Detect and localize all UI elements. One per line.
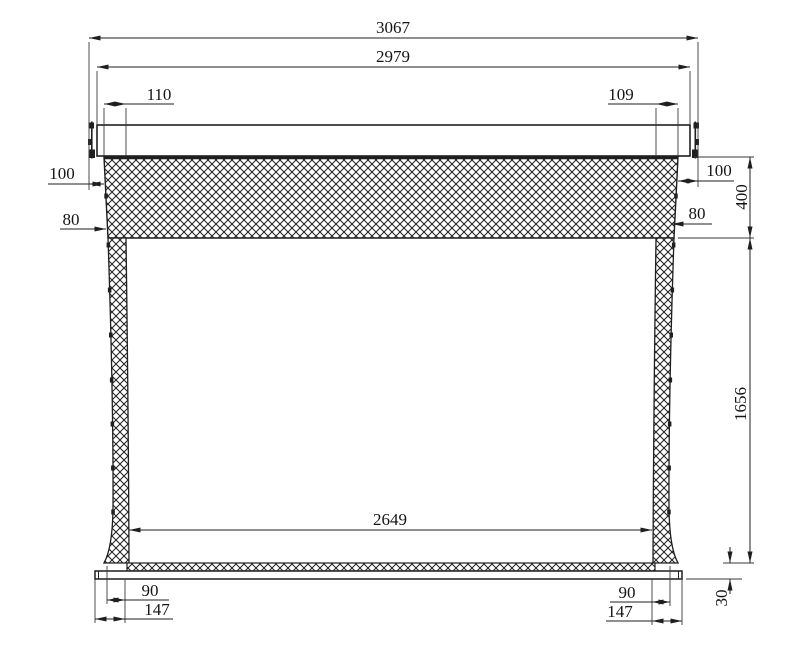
bottom-weight-bar: [95, 571, 682, 579]
dim-border-right-label: 80: [689, 204, 706, 223]
bottom-hatched-strip: [127, 563, 655, 571]
dim-overall-width-label: 3067: [376, 18, 411, 37]
dim-offset-top-left-label: 110: [147, 85, 172, 104]
dim-edge-left-label: 100: [49, 164, 75, 183]
dim-bar-height-label: 30: [712, 590, 731, 607]
dim-foot-right-inner-label: 90: [619, 583, 636, 602]
dim-edge-right-label: 100: [706, 161, 732, 180]
dim-foot-right-outer-label: 147: [607, 602, 633, 621]
dim-case-width-label: 2979: [376, 47, 410, 66]
dim-foot-left-outer-label: 147: [144, 600, 170, 619]
dim-band-height-label: 400: [732, 184, 751, 210]
top-housing-case: [97, 125, 690, 156]
top-hatched-band: [104, 157, 678, 238]
dim-screen-height-label: 1656: [731, 387, 750, 421]
dim-offset-top-right-label: 109: [608, 85, 634, 104]
screen-drawing: 3067 2979 110 109 100 100 80 80 400 1656…: [0, 0, 800, 650]
dim-border-left-label: 80: [63, 210, 80, 229]
dim-viewing-width-label: 2649: [373, 510, 407, 529]
left-side-border: [104, 238, 129, 563]
dimension-labels: 3067 2979 110 109 100 100 80 80 400 1656…: [49, 18, 751, 621]
dim-foot-left-inner-label: 90: [142, 581, 159, 600]
technical-drawing-sheet: 3067 2979 110 109 100 100 80 80 400 1656…: [0, 0, 800, 650]
right-side-border: [653, 238, 678, 563]
